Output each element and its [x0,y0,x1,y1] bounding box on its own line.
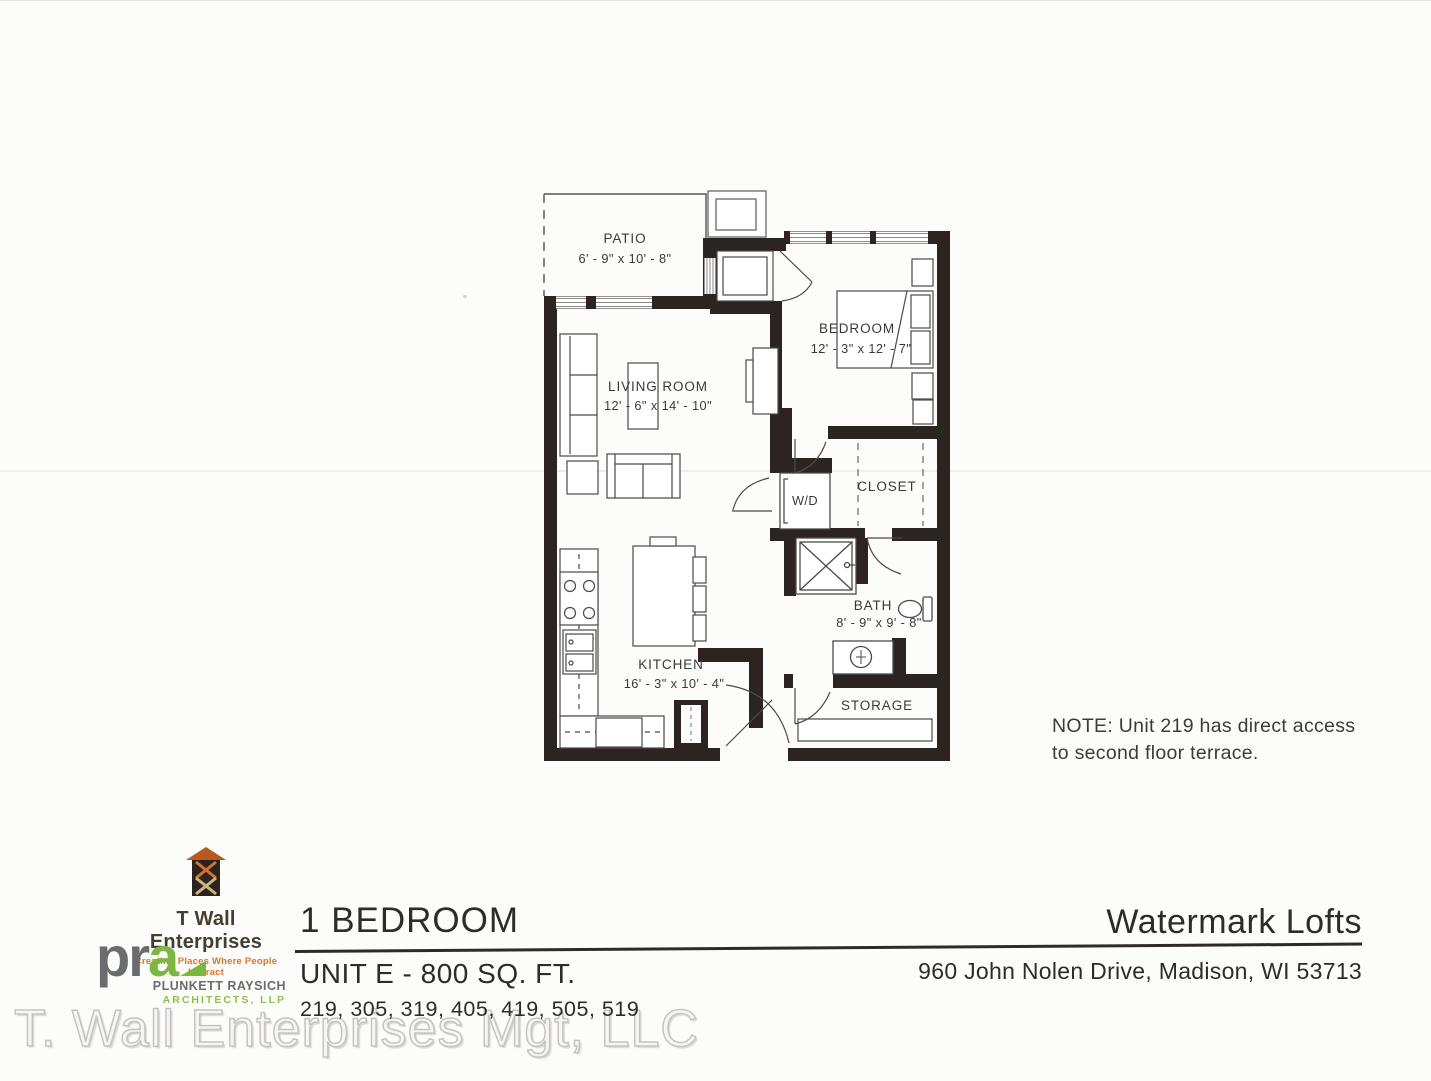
pillow [911,331,930,364]
floor-plan-drawing: PATIO 6' - 9" x 10' - 8" LIVING ROOM 12'… [540,186,960,766]
bath-dims: 8' - 9" x 9' - 8" [836,615,922,630]
stool [693,557,706,583]
entry-coat-closet [717,251,773,301]
property-name: Watermark Lofts [918,903,1362,942]
pillow [911,295,930,328]
nightstand [912,259,933,286]
shower [796,538,856,594]
stool [693,586,706,612]
pra-firm-type: ARCHITECTS, LLP [96,994,286,1006]
storage-shelf [798,719,932,741]
floor-plan-page: PATIO 6' - 9" x 10' - 8" LIVING ROOM 12'… [0,0,1431,1081]
stool [693,615,706,641]
kitchen-label: KITCHEN [638,657,704,672]
closet-label: CLOSET [857,479,916,494]
dresser [913,400,933,424]
pra-pr: pr [96,925,148,988]
kitchen-island [633,546,695,646]
note-line-2: to second floor terrace. [1052,740,1355,767]
tv [746,360,753,402]
patio-dims: 6' - 9" x 10' - 8" [578,251,671,266]
living-room-furniture [560,251,778,498]
kitchen-dims: 16' - 3" x 10' - 4" [624,676,725,691]
terrace-note: NOTE: Unit 219 has direct access to seco… [1052,713,1355,767]
patio-label: PATIO [603,231,646,246]
bath-door [867,538,902,574]
adjacent-structure [708,191,766,237]
twall-logo-icon [185,847,227,899]
storage-label: STORAGE [841,698,913,713]
sofa [560,334,597,456]
bath-label: BATH [854,598,893,613]
living-hall-door [732,478,772,511]
tv-console [753,348,778,414]
nightstand [912,373,933,399]
coffee-table [628,363,658,429]
pra-triangle-icon [180,959,206,976]
wd-label: W/D [792,493,818,508]
end-table [567,461,598,494]
title-block: T Wall Enterprises Creating Places Where… [0,841,1431,1081]
note-line-1: NOTE: Unit 219 has direct access [1052,713,1355,740]
pra-wordmark: pra [96,933,288,981]
living-dims: 12' - 6" x 14' - 10" [604,398,712,413]
unit-label: UNIT E - 800 SQ. FT. [300,958,639,990]
unit-numbers: 219, 305, 319, 405, 419, 505, 519 [300,997,639,1022]
dishwasher [596,718,642,747]
unit-title-block: 1 BEDROOM UNIT E - 800 SQ. FT. 219, 305,… [300,901,639,1022]
unit-type: 1 BEDROOM [300,901,639,941]
property-block: Watermark Lofts 960 John Nolen Drive, Ma… [918,903,1362,985]
property-address: 960 John Nolen Drive, Madison, WI 53713 [918,958,1362,985]
bedroom-door [780,251,812,301]
bedroom-dims: 12' - 3" x 12' - 7" [811,341,912,356]
toilet-tank [923,597,932,621]
living-label: LIVING ROOM [608,379,708,394]
pra-logo: pra PLUNKETT RAYSICH ARCHITECTS, LLP [96,933,288,1006]
scan-speck [463,295,467,298]
bedroom-label: BEDROOM [819,321,895,336]
